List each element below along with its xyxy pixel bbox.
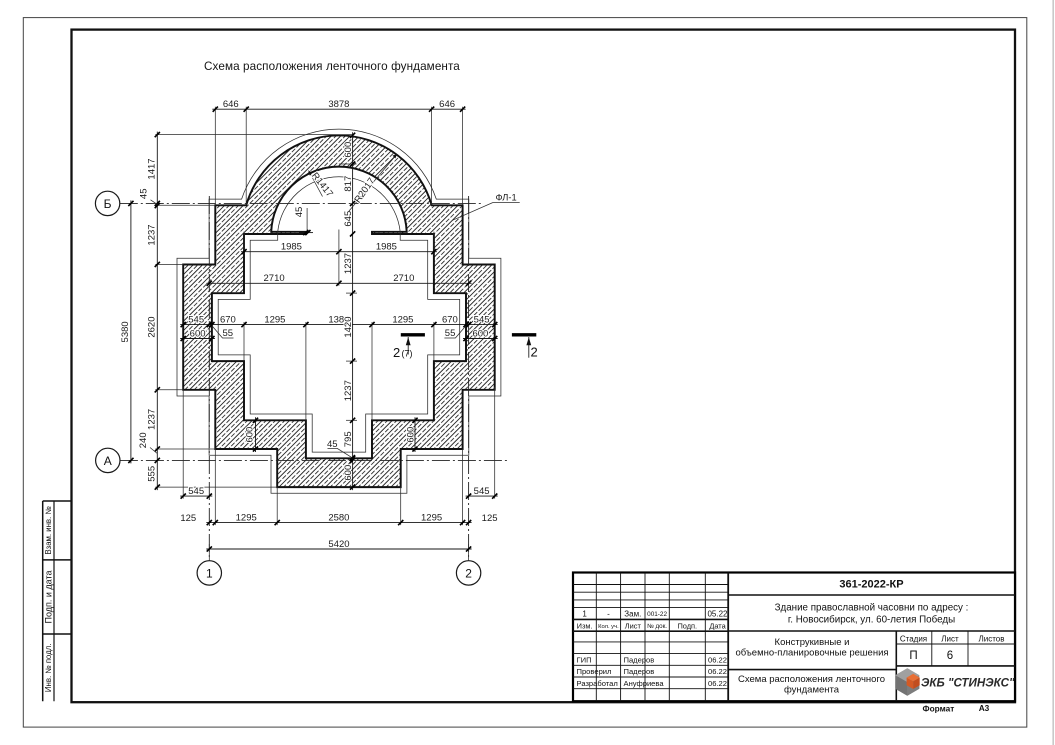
svg-text:Изм.: Изм.: [577, 621, 593, 630]
svg-text:1: 1: [206, 566, 213, 580]
svg-text:Формат: Формат: [922, 704, 954, 714]
svg-text:817: 817: [343, 176, 354, 192]
svg-text:Здание православной часовни по: Здание православной часовни по адресу :: [775, 603, 969, 614]
svg-text:1237: 1237: [146, 224, 157, 245]
svg-text:1985: 1985: [281, 242, 302, 253]
svg-text:1295: 1295: [264, 314, 285, 325]
svg-text:670: 670: [220, 314, 236, 325]
svg-text:06.22: 06.22: [708, 667, 727, 676]
svg-text:670: 670: [442, 314, 458, 325]
svg-text:1237: 1237: [343, 380, 354, 401]
svg-text:05.22: 05.22: [707, 610, 728, 619]
svg-text:Кол. уч.: Кол. уч.: [598, 624, 619, 630]
svg-text:545: 545: [188, 486, 204, 497]
svg-text:2710: 2710: [264, 273, 285, 284]
svg-text:Стадия: Стадия: [900, 634, 927, 643]
svg-text:1237: 1237: [146, 409, 157, 430]
svg-text:600: 600: [472, 328, 488, 339]
svg-text:Взам. инв. №: Взам. инв. №: [44, 506, 53, 554]
svg-text:фундамента: фундамента: [784, 684, 840, 695]
svg-text:2710: 2710: [393, 273, 414, 284]
svg-text:2: 2: [531, 345, 538, 360]
svg-text:600: 600: [245, 427, 256, 443]
svg-text:1417: 1417: [146, 158, 157, 179]
svg-text:-: -: [607, 610, 610, 619]
svg-text:2: 2: [465, 566, 472, 580]
svg-text:1237: 1237: [343, 253, 354, 274]
svg-text:Схема расположения ленточного: Схема расположения ленточного фундамента: [204, 60, 460, 73]
svg-text:Инв. № подл.: Инв. № подл.: [44, 644, 53, 693]
svg-text:Листов: Листов: [979, 634, 1005, 643]
svg-text:Подп. и дата: Подп. и дата: [44, 570, 54, 623]
svg-text:А3: А3: [979, 703, 990, 713]
svg-text:645: 645: [343, 211, 354, 227]
svg-text:Ануфриева: Ануфриева: [624, 679, 665, 688]
svg-text:г. Новосибирск, ул. 60-летия П: г. Новосибирск, ул. 60-летия Победы: [788, 614, 955, 625]
svg-text:06.22: 06.22: [708, 679, 727, 688]
svg-text:объемно-планировочные решения: объемно-планировочные решения: [735, 647, 888, 658]
svg-text:600: 600: [343, 142, 354, 158]
svg-text:545: 545: [474, 486, 490, 497]
svg-text:45: 45: [327, 439, 338, 450]
svg-text:Зам.: Зам.: [624, 610, 641, 619]
svg-text:Дата: Дата: [709, 621, 726, 630]
svg-text:Подп.: Подп.: [677, 621, 697, 630]
svg-text:5380: 5380: [120, 321, 131, 342]
svg-text:2620: 2620: [146, 317, 157, 338]
svg-text:555: 555: [146, 466, 157, 482]
svg-text:1985: 1985: [376, 242, 397, 253]
svg-text:125: 125: [482, 513, 498, 524]
svg-text:795: 795: [343, 431, 354, 447]
svg-text:ФЛ-1: ФЛ-1: [496, 192, 517, 202]
svg-text:1: 1: [582, 610, 587, 619]
svg-text:Лист: Лист: [941, 634, 959, 643]
svg-text:Падеров: Падеров: [624, 667, 655, 676]
svg-text:Проверил: Проверил: [577, 667, 612, 676]
svg-text:55: 55: [445, 328, 456, 339]
svg-text:Лист: Лист: [625, 621, 642, 630]
svg-text:600: 600: [406, 427, 417, 443]
svg-text:45: 45: [294, 207, 305, 218]
svg-text:001-22: 001-22: [647, 611, 667, 618]
svg-text:П: П: [909, 650, 917, 662]
svg-text:1420: 1420: [343, 317, 354, 338]
svg-text:Разработал: Разработал: [577, 679, 618, 688]
svg-text:545: 545: [474, 314, 490, 325]
svg-text:Б: Б: [104, 197, 112, 211]
svg-text:5420: 5420: [328, 539, 349, 550]
svg-text:ГИП: ГИП: [577, 656, 592, 665]
svg-text:55: 55: [223, 328, 234, 339]
svg-text:1295: 1295: [421, 512, 442, 523]
svg-text:125: 125: [180, 513, 196, 524]
svg-text:600: 600: [190, 328, 206, 339]
svg-text:45: 45: [139, 189, 150, 200]
svg-text:1295: 1295: [236, 512, 257, 523]
svg-text:06.22: 06.22: [708, 656, 727, 665]
svg-text:1295: 1295: [392, 314, 413, 325]
svg-text:А: А: [104, 454, 112, 468]
svg-text:3878: 3878: [328, 99, 349, 110]
svg-text:2: 2: [393, 345, 400, 360]
svg-text:600: 600: [343, 465, 354, 481]
svg-text:646: 646: [223, 99, 239, 110]
svg-text:2580: 2580: [328, 512, 349, 523]
svg-text:545: 545: [188, 314, 204, 325]
svg-text:R2017: R2017: [352, 176, 377, 205]
svg-text:361-2022-КР: 361-2022-КР: [839, 578, 903, 590]
svg-text:6: 6: [947, 650, 953, 662]
svg-text:646: 646: [439, 99, 455, 110]
svg-text:(7): (7): [402, 349, 413, 359]
svg-text:240: 240: [138, 432, 149, 448]
svg-text:ЭКБ "СТИНЭКС": ЭКБ "СТИНЭКС": [921, 676, 1015, 690]
svg-text:Падеров: Падеров: [624, 656, 655, 665]
svg-text:№ док.: № док.: [647, 623, 667, 630]
